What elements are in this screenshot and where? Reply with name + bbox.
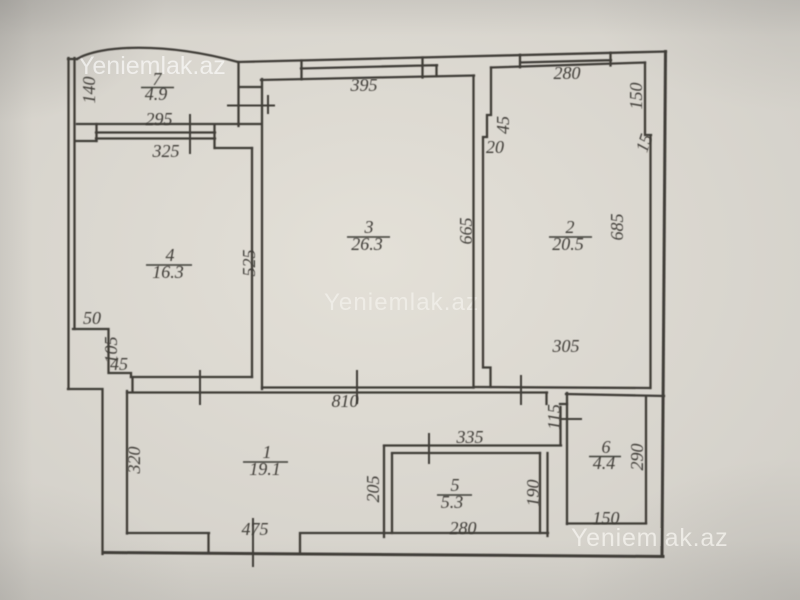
svg-text:105: 105	[101, 337, 121, 364]
svg-text:190: 190	[523, 480, 543, 507]
svg-text:205: 205	[363, 476, 383, 503]
svg-text:140: 140	[79, 77, 99, 104]
svg-text:475: 475	[242, 519, 269, 539]
svg-text:335: 335	[456, 427, 484, 447]
svg-text:45: 45	[493, 116, 513, 134]
svg-text:150: 150	[593, 508, 620, 528]
svg-text:115: 115	[544, 404, 564, 430]
svg-text:665: 665	[456, 218, 476, 245]
svg-text:320: 320	[124, 447, 144, 475]
svg-text:280: 280	[554, 63, 581, 83]
svg-text:150: 150	[626, 83, 646, 110]
svg-text:50: 50	[83, 308, 101, 328]
svg-text:20: 20	[486, 137, 504, 157]
svg-text:810: 810	[332, 391, 359, 411]
svg-text:525: 525	[239, 250, 259, 277]
svg-text:325: 325	[152, 141, 180, 161]
svg-text:305: 305	[552, 336, 580, 356]
svg-text:280: 280	[450, 518, 477, 538]
svg-text:290: 290	[627, 444, 647, 471]
svg-text:685: 685	[607, 214, 627, 241]
svg-text:15: 15	[632, 131, 657, 154]
svg-text:295: 295	[146, 109, 173, 129]
svg-text:395: 395	[350, 75, 378, 95]
